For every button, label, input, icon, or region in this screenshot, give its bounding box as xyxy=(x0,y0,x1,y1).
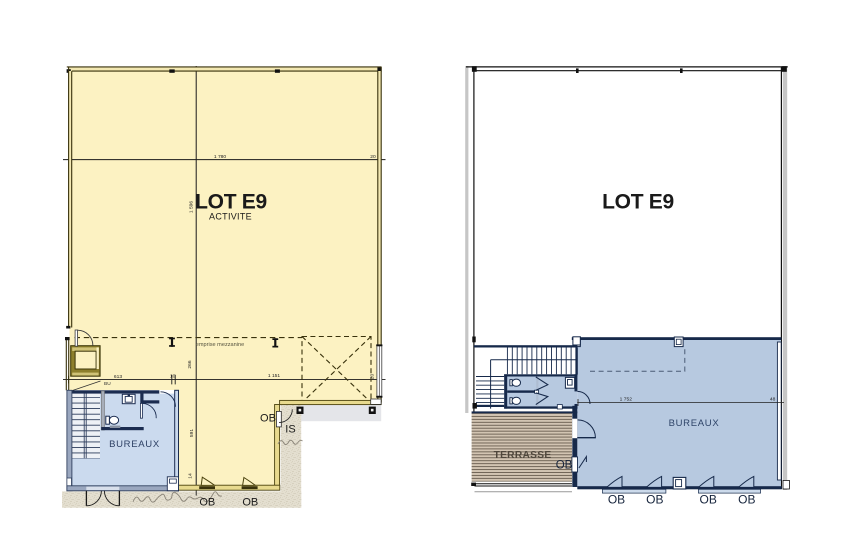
svg-text:OB: OB xyxy=(242,497,258,509)
svg-text:BU: BU xyxy=(104,381,111,387)
svg-text:OB: OB xyxy=(608,493,625,507)
svg-text:OB: OB xyxy=(646,493,663,507)
svg-text:ACTIVITE: ACTIVITE xyxy=(209,212,252,222)
svg-text:266: 266 xyxy=(187,360,193,368)
svg-text:1 752: 1 752 xyxy=(620,397,633,403)
svg-text:591: 591 xyxy=(189,429,195,437)
svg-text:BUREAUX: BUREAUX xyxy=(669,418,720,429)
svg-text:LOT E9: LOT E9 xyxy=(602,191,674,214)
svg-text:TERRASSE: TERRASSE xyxy=(494,450,552,461)
svg-text:OB: OB xyxy=(199,497,215,509)
svg-text:1 780: 1 780 xyxy=(214,154,227,160)
svg-text:BUREAUX: BUREAUX xyxy=(109,439,160,450)
svg-text:OB: OB xyxy=(738,493,755,507)
svg-text:20: 20 xyxy=(369,374,375,380)
svg-text:IS: IS xyxy=(285,424,295,436)
svg-text:20: 20 xyxy=(370,154,376,160)
svg-text:1 596: 1 596 xyxy=(188,201,194,214)
svg-text:14: 14 xyxy=(188,473,194,479)
svg-text:1 151: 1 151 xyxy=(268,373,281,379)
svg-text:10: 10 xyxy=(170,374,176,380)
svg-text:613: 613 xyxy=(114,374,122,380)
svg-text:emprise mezzanine: emprise mezzanine xyxy=(196,342,245,348)
svg-text:OB: OB xyxy=(556,460,573,472)
svg-text:48: 48 xyxy=(770,396,776,402)
svg-text:OB: OB xyxy=(700,493,717,507)
svg-text:LOT E9: LOT E9 xyxy=(195,191,267,214)
svg-text:OB: OB xyxy=(260,413,276,425)
